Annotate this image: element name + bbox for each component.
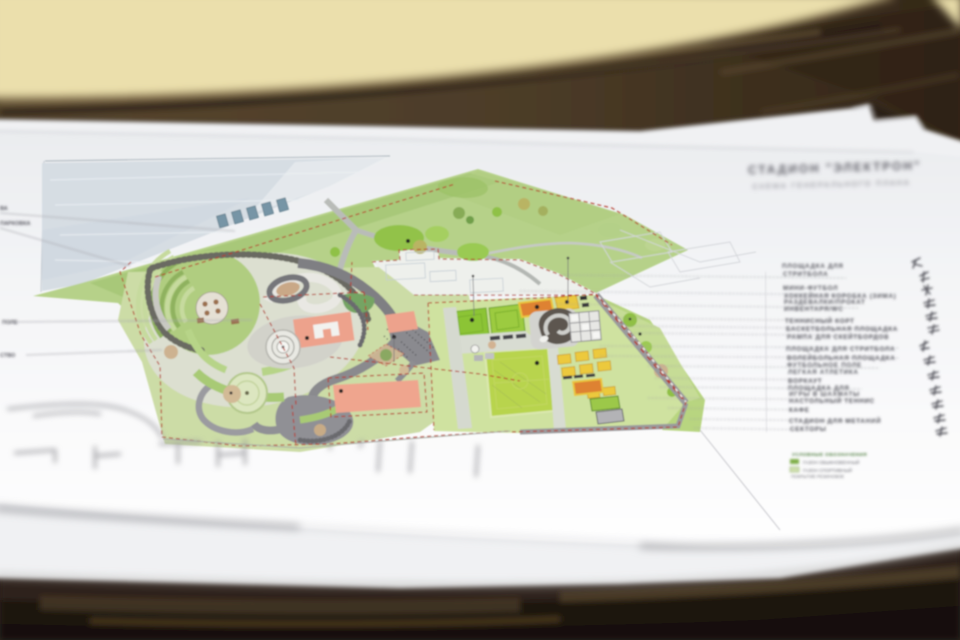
svg-text:ВА: ВА xyxy=(0,206,8,212)
svg-text:МИНИ-ФУТБОЛ: МИНИ-ФУТБОЛ xyxy=(783,285,838,292)
svg-text:ВОЛЕЙБОЛЬНАЯ ПЛОЩАДКА: ВОЛЕЙБОЛЬНАЯ ПЛОЩАДКА xyxy=(787,353,895,362)
svg-text:СТВО: СТВО xyxy=(0,353,16,359)
svg-text:ФУТБОЛЬНОЕ ПОЛЕ: ФУТБОЛЬНОЕ ПОЛЕ xyxy=(787,362,862,369)
svg-text:ИНВЕНТАРЯ/WC: ИНВЕНТАРЯ/WC xyxy=(784,306,844,313)
svg-text:ИГРЫ В ШАХМАТЫ: ИГРЫ В ШАХМАТЫ xyxy=(789,391,860,398)
svg-text:БАСКЕТБОЛЬНАЯ ПЛОЩАДКА: БАСКЕТБОЛЬНАЯ ПЛОЩАДКА xyxy=(786,326,898,333)
svg-text:УСЛОВНЫЕ ОБОЗНАЧЕНИЯ: УСЛОВНЫЕ ОБОЗНАЧЕНИЯ xyxy=(792,452,867,458)
svg-text:СТАДИОН ДЛЯ МЕТАНИЙ: СТАДИОН ДЛЯ МЕТАНИЙ xyxy=(789,416,881,425)
svg-text:ТЕННИСНЫЙ КОРТ: ТЕННИСНЫЙ КОРТ xyxy=(785,316,855,325)
svg-text:ВОРКАУТ: ВОРКАУТ xyxy=(788,378,822,385)
svg-text:ПЛОЩАДКА ДЛЯ СТРИТБОЛА: ПЛОЩАДКА ДЛЯ СТРИТБОЛА xyxy=(786,346,895,353)
svg-text:ГАЗОН СПОРТИВНЫЙ: ГАЗОН СПОРТИВНЫЙ xyxy=(803,466,852,473)
svg-text:ГАЗОН ОБЫКНОВЕННЫЙ: ГАЗОН ОБЫКНОВЕННЫЙ xyxy=(803,458,859,465)
svg-text:ПАРКОВКА: ПАРКОВКА xyxy=(0,221,31,227)
svg-text:ПОЛЕ: ПОЛЕ xyxy=(2,320,18,326)
svg-text:РАМПА ДЛЯ СКЕЙТБОРДОВ: РАМПА ДЛЯ СКЕЙТБОРДОВ xyxy=(787,332,889,341)
svg-text:НАСТОЛЬНЫЙ ТЕННИС: НАСТОЛЬНЫЙ ТЕННИС xyxy=(789,396,875,405)
svg-text:РАЗДЕВАЛКИ/ПРОКАТ: РАЗДЕВАЛКИ/ПРОКАТ xyxy=(784,299,866,306)
svg-text:ПЛОЩАДКА ДЛЯ: ПЛОЩАДКА ДЛЯ xyxy=(782,263,844,270)
svg-text:ПОКРЫТИЕ РЕЗИНОВОЕ: ПОКРЫТИЕ РЕЗИНОВОЕ xyxy=(791,474,844,479)
svg-text:КАФЕ: КАФЕ xyxy=(789,407,810,414)
svg-text:ЛЕГКАЯ АТЛЕТИКА: ЛЕГКАЯ АТЛЕТИКА xyxy=(788,369,859,376)
svg-text:СТРИТБОЛА: СТРИТБОЛА xyxy=(783,271,828,278)
svg-text:СЕКТОРЫ: СЕКТОРЫ xyxy=(790,426,827,433)
